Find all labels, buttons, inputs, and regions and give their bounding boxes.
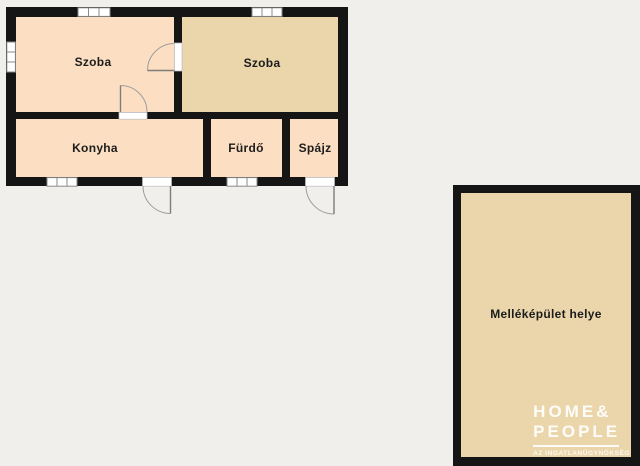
label-spajz: Spájz <box>299 141 332 155</box>
floor-plan: Szoba Szoba Konyha Fürdő Spájz Melléképü… <box>0 0 640 466</box>
label-szoba-right: Szoba <box>244 56 281 70</box>
window-szoba-left-side <box>7 42 16 72</box>
door-spajz-entrance <box>306 177 335 214</box>
logo-divider <box>533 445 619 447</box>
main-building: Szoba Szoba Konyha Fürdő Spájz <box>6 7 348 214</box>
window-konyha-bottom <box>47 178 77 187</box>
logo-tagline: AZ INGATLANÜGYNÖKSÉG <box>533 450 630 457</box>
label-furdo: Fürdő <box>228 141 264 155</box>
window-szoba-right-top <box>252 8 282 17</box>
window-furdo-bottom <box>227 178 257 187</box>
label-konyha: Konyha <box>72 141 118 155</box>
homepeople-logo: HOME& PEOPLE AZ INGATLANÜGYNÖKSÉG <box>533 402 630 457</box>
floorplan-image: Szoba Szoba Konyha Fürdő Spájz Melléképü… <box>0 0 640 466</box>
label-outbuilding: Melléképület helye <box>490 307 601 321</box>
window-szoba-left-top <box>78 8 110 17</box>
door-konyha-entrance <box>143 177 172 213</box>
logo-word-people: PEOPLE <box>533 422 630 442</box>
label-szoba-left: Szoba <box>75 55 112 69</box>
logo-word-home: HOME& <box>533 402 630 422</box>
